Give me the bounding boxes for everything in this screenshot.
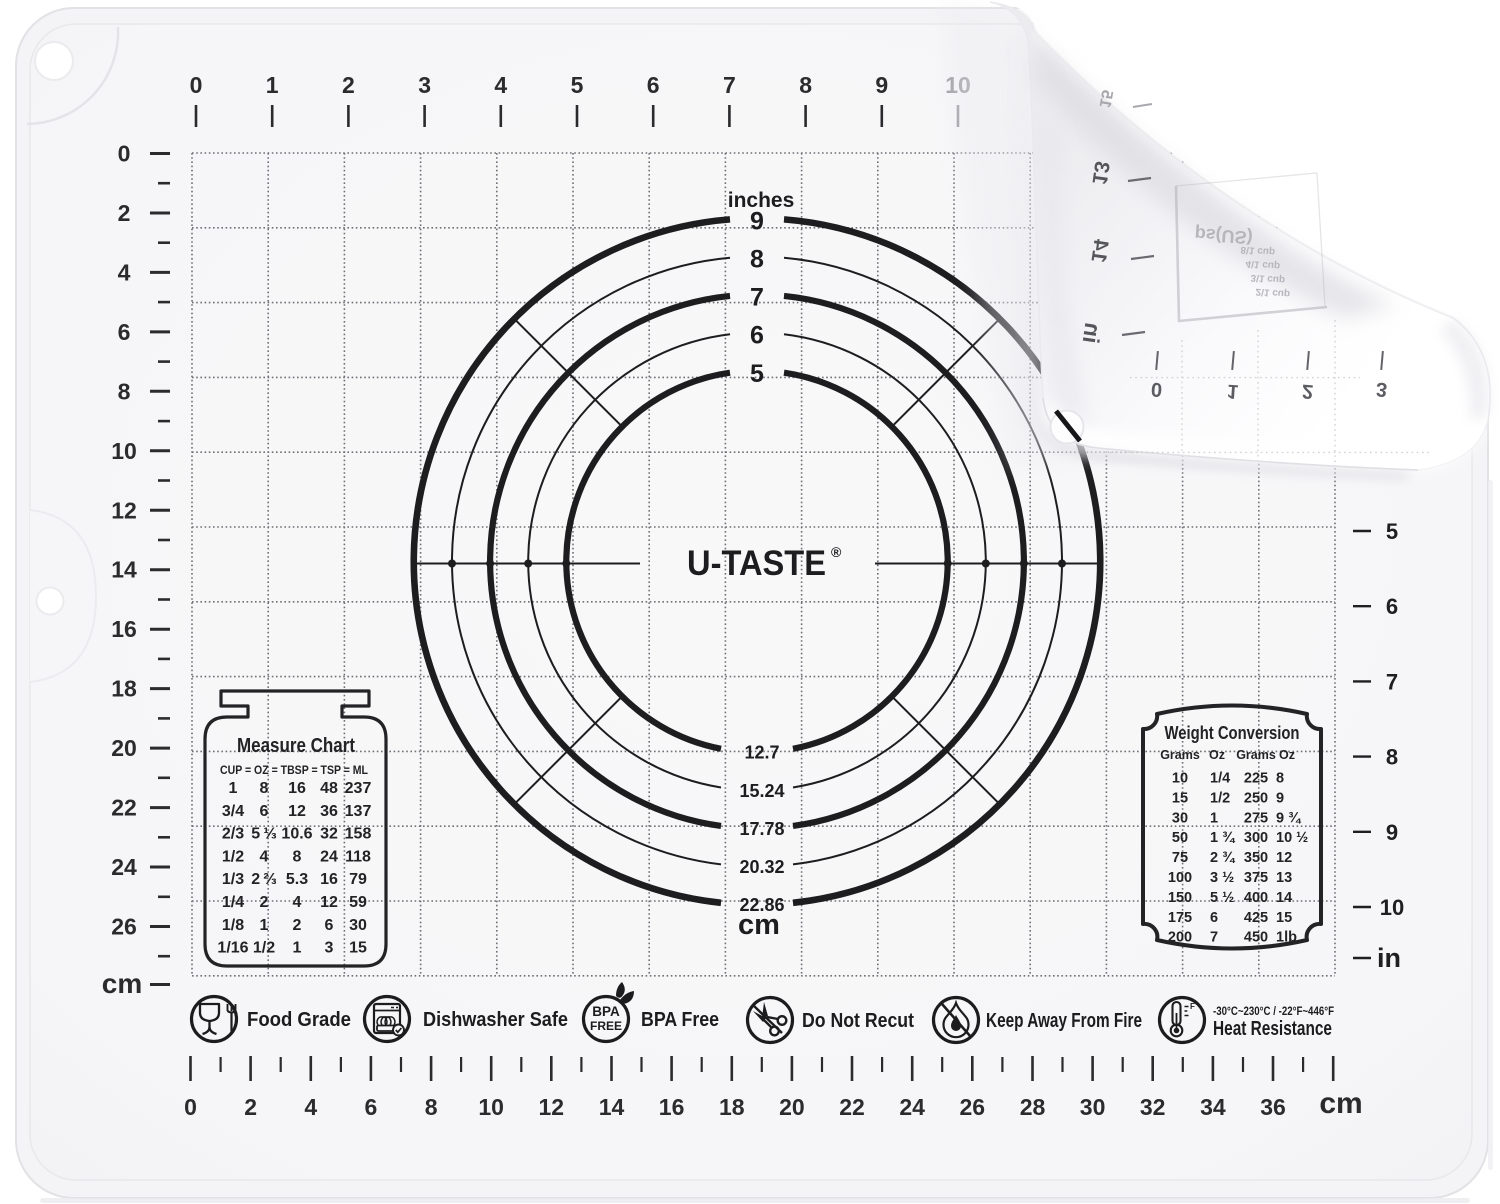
svg-text:9: 9	[1276, 790, 1284, 806]
svg-text:12.7: 12.7	[744, 743, 779, 763]
svg-text:6: 6	[325, 917, 334, 934]
svg-text:6: 6	[1386, 594, 1398, 619]
svg-text:5: 5	[571, 72, 584, 98]
svg-text:1/3: 1/3	[222, 871, 244, 888]
svg-text:15: 15	[1276, 910, 1292, 926]
svg-text:Grams: Grams	[1236, 748, 1276, 762]
svg-text:225: 225	[1244, 771, 1268, 787]
svg-text:9: 9	[1386, 820, 1398, 845]
svg-text:1: 1	[1226, 380, 1239, 403]
svg-text:U-TASTE: U-TASTE	[687, 544, 826, 583]
svg-text:Measure Chart: Measure Chart	[237, 735, 355, 757]
svg-text:10: 10	[478, 1094, 504, 1120]
svg-text:cm: cm	[738, 909, 780, 941]
svg-text:15.24: 15.24	[739, 781, 784, 801]
svg-text:2: 2	[293, 917, 302, 934]
svg-text:8: 8	[750, 246, 764, 274]
svg-text:59: 59	[349, 894, 367, 911]
svg-text:36: 36	[1260, 1094, 1286, 1120]
svg-text:2: 2	[244, 1094, 257, 1120]
svg-text:-30°C~230°C / -22°F~446°F: -30°C~230°C / -22°F~446°F	[1213, 1004, 1334, 1018]
svg-text:1lb: 1lb	[1276, 930, 1297, 946]
svg-text:275: 275	[1244, 810, 1268, 826]
svg-text:400: 400	[1244, 890, 1268, 906]
svg-text:8: 8	[425, 1094, 438, 1120]
svg-text:375: 375	[1244, 870, 1268, 886]
svg-text:28: 28	[1020, 1094, 1046, 1120]
svg-text:15: 15	[349, 940, 367, 957]
svg-text:12: 12	[1276, 850, 1292, 866]
svg-text:2/3: 2/3	[222, 826, 244, 843]
svg-text:2 ⅔: 2 ⅔	[251, 871, 276, 888]
svg-text:®: ®	[831, 544, 842, 560]
svg-text:22: 22	[839, 1094, 865, 1120]
svg-text:18: 18	[111, 676, 137, 702]
svg-text:15: 15	[1096, 88, 1116, 109]
svg-text:4: 4	[260, 848, 269, 865]
svg-text:1/16: 1/16	[217, 940, 248, 957]
svg-text:13: 13	[1276, 870, 1292, 886]
svg-text:79: 79	[349, 871, 367, 888]
svg-text:1/2: 1/2	[253, 940, 275, 957]
svg-text:cm: cm	[102, 968, 142, 999]
svg-text:2 ¾: 2 ¾	[1210, 850, 1236, 866]
svg-text:1: 1	[260, 917, 269, 934]
svg-text:450: 450	[1244, 930, 1268, 946]
svg-text:10.6: 10.6	[281, 826, 312, 843]
svg-text:237: 237	[345, 780, 372, 797]
svg-text:10: 10	[111, 438, 137, 464]
svg-text:7: 7	[1386, 669, 1398, 694]
svg-text:4: 4	[494, 72, 507, 98]
svg-text:Grams: Grams	[1160, 748, 1200, 762]
svg-text:16: 16	[320, 871, 338, 888]
svg-text:FREE: FREE	[590, 1019, 622, 1033]
svg-text:32: 32	[320, 826, 338, 843]
svg-text:7: 7	[723, 72, 736, 98]
svg-text:24: 24	[320, 848, 338, 865]
svg-text:Keep Away From Fire: Keep Away From Fire	[986, 1010, 1142, 1032]
svg-text:4: 4	[293, 894, 302, 911]
svg-text:3 ½: 3 ½	[1210, 870, 1234, 886]
svg-text:20.32: 20.32	[739, 857, 784, 877]
svg-text:CUP = OZ = TBSP = TSP = ML: CUP = OZ = TBSP = TSP = ML	[220, 763, 368, 777]
svg-text:30: 30	[1080, 1094, 1106, 1120]
svg-text:300: 300	[1244, 830, 1268, 846]
svg-text:18: 18	[719, 1094, 745, 1120]
svg-text:20: 20	[111, 735, 137, 761]
svg-text:150: 150	[1168, 890, 1192, 906]
svg-text:200: 200	[1168, 930, 1192, 946]
svg-text:15: 15	[1172, 790, 1188, 806]
svg-text:10: 10	[1380, 895, 1404, 920]
svg-text:2: 2	[342, 72, 355, 98]
svg-text:425: 425	[1244, 910, 1268, 926]
svg-text:cm: cm	[1319, 1087, 1362, 1120]
svg-text:12: 12	[288, 803, 306, 820]
svg-text:1/4: 1/4	[1210, 771, 1230, 787]
svg-text:3: 3	[1375, 378, 1388, 401]
svg-text:6: 6	[1210, 910, 1218, 926]
svg-text:137: 137	[345, 803, 372, 820]
svg-text:30: 30	[349, 917, 367, 934]
svg-text:24: 24	[111, 854, 137, 880]
svg-text:8: 8	[1386, 745, 1398, 770]
svg-text:1: 1	[293, 940, 302, 957]
svg-text:8: 8	[799, 72, 812, 98]
svg-text:2: 2	[118, 200, 131, 226]
svg-text:14: 14	[111, 557, 137, 583]
svg-text:12: 12	[539, 1094, 565, 1120]
svg-text:Do Not Recut: Do Not Recut	[802, 1010, 914, 1032]
svg-text:Oz: Oz	[1209, 748, 1225, 762]
svg-text:F: F	[1190, 1002, 1195, 1011]
svg-text:13: 13	[1087, 160, 1113, 186]
svg-text:10: 10	[1172, 771, 1188, 787]
svg-text:17.78: 17.78	[739, 819, 784, 839]
svg-text:32: 32	[1140, 1094, 1166, 1120]
svg-text:5 ½: 5 ½	[1210, 890, 1234, 906]
svg-text:Heat Resistance: Heat Resistance	[1213, 1018, 1332, 1040]
svg-text:34: 34	[1200, 1094, 1226, 1120]
svg-text:20: 20	[779, 1094, 805, 1120]
svg-text:1: 1	[229, 780, 238, 797]
svg-text:3: 3	[325, 940, 334, 957]
svg-text:14: 14	[599, 1094, 625, 1120]
svg-text:50: 50	[1172, 830, 1188, 846]
svg-text:0: 0	[1150, 378, 1163, 401]
svg-text:4: 4	[304, 1094, 317, 1120]
svg-text:14: 14	[1086, 237, 1112, 264]
svg-text:5: 5	[1386, 519, 1398, 544]
svg-text:10 ½: 10 ½	[1276, 830, 1308, 846]
svg-text:5.3: 5.3	[286, 871, 308, 888]
svg-text:6: 6	[750, 322, 764, 350]
svg-text:3: 3	[418, 72, 431, 98]
svg-text:100: 100	[1168, 870, 1192, 886]
svg-text:Oz: Oz	[1279, 748, 1295, 762]
svg-text:9: 9	[875, 72, 888, 98]
svg-text:BPA: BPA	[592, 1004, 620, 1019]
svg-text:7: 7	[1210, 930, 1218, 946]
svg-text:75: 75	[1172, 850, 1188, 866]
svg-text:8: 8	[293, 848, 302, 865]
svg-text:2: 2	[1301, 380, 1314, 403]
svg-text:5: 5	[750, 360, 764, 388]
svg-text:14: 14	[1276, 890, 1292, 906]
svg-text:4: 4	[118, 259, 131, 285]
svg-text:158: 158	[345, 826, 372, 843]
svg-text:8: 8	[260, 780, 269, 797]
svg-text:0: 0	[118, 141, 131, 167]
svg-text:1/8: 1/8	[222, 917, 244, 934]
svg-text:6: 6	[647, 72, 660, 98]
svg-text:26: 26	[111, 914, 137, 940]
svg-text:26: 26	[960, 1094, 986, 1120]
svg-text:6: 6	[365, 1094, 378, 1120]
svg-text:6: 6	[118, 319, 131, 345]
svg-text:9 ¾: 9 ¾	[1276, 810, 1302, 826]
svg-text:12: 12	[111, 497, 137, 523]
svg-text:30: 30	[1172, 810, 1188, 826]
svg-text:16: 16	[659, 1094, 685, 1120]
svg-text:0: 0	[190, 72, 203, 98]
svg-text:350: 350	[1244, 850, 1268, 866]
svg-text:16: 16	[111, 616, 137, 642]
svg-text:1: 1	[1210, 810, 1218, 826]
svg-text:24: 24	[899, 1094, 925, 1120]
svg-text:48: 48	[320, 780, 338, 797]
svg-text:BPA Free: BPA Free	[641, 1009, 719, 1031]
svg-text:12: 12	[320, 894, 338, 911]
svg-text:8: 8	[1276, 771, 1284, 787]
svg-text:6: 6	[260, 803, 269, 820]
svg-text:in: in	[1377, 943, 1401, 973]
svg-text:1: 1	[266, 72, 279, 98]
svg-text:Weight Conversion: Weight Conversion	[1165, 723, 1300, 743]
svg-text:16: 16	[288, 780, 306, 797]
svg-text:Food Grade: Food Grade	[247, 1009, 351, 1031]
svg-text:175: 175	[1168, 910, 1192, 926]
svg-text:9: 9	[750, 207, 764, 235]
svg-text:0: 0	[184, 1094, 197, 1120]
svg-text:36: 36	[320, 803, 338, 820]
svg-text:7: 7	[750, 284, 764, 312]
svg-text:1/2: 1/2	[222, 848, 244, 865]
svg-text:1 ¾: 1 ¾	[1210, 830, 1236, 846]
svg-text:5 ⅓: 5 ⅓	[251, 826, 276, 843]
svg-text:22: 22	[111, 795, 137, 821]
svg-text:Dishwasher Safe: Dishwasher Safe	[423, 1009, 568, 1031]
svg-text:118: 118	[345, 848, 371, 865]
svg-text:1/4: 1/4	[222, 894, 244, 911]
svg-text:2: 2	[260, 894, 269, 911]
svg-text:in: in	[1078, 321, 1107, 345]
svg-text:3/4: 3/4	[222, 803, 244, 820]
svg-text:1/2: 1/2	[1210, 790, 1230, 806]
svg-text:8: 8	[118, 378, 131, 404]
svg-text:250: 250	[1244, 790, 1268, 806]
